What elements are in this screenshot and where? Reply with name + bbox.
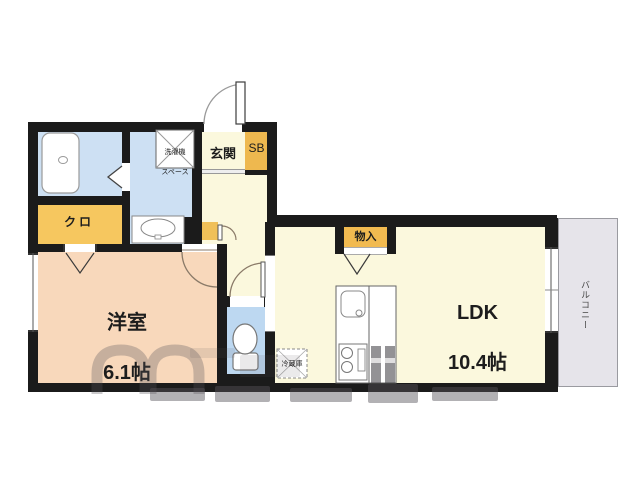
wall-ldk-right-lower <box>545 333 558 392</box>
pipe-space-box <box>202 222 218 240</box>
storage-opening <box>344 247 387 255</box>
front-door-arc <box>204 84 244 124</box>
wall-westroom-top-a <box>28 244 63 252</box>
western-room-label: 洋室 6.1帖 <box>72 286 182 386</box>
wall-block-right-upper <box>267 122 277 222</box>
wall-sb-bottom <box>245 170 267 175</box>
closet-opening <box>63 244 97 252</box>
window-left <box>28 253 38 332</box>
toilet-room-floor <box>222 300 268 380</box>
shoe-box-label: SB <box>245 141 268 155</box>
wall-westroom-top-b <box>97 244 182 252</box>
washer-space-label: 洗濯機 スペース <box>155 138 195 178</box>
storage-stub-left <box>335 223 344 254</box>
closet-label: クロ <box>48 213 110 230</box>
wall-hall-ldk-lower <box>265 332 275 392</box>
washer-space-line2: スペース <box>161 169 188 176</box>
bathroom-floor <box>33 127 127 201</box>
wall-ldk-top <box>267 215 557 227</box>
ldk-label: LDK 10.4帖 <box>420 276 535 376</box>
floorplan: 玄関 SB 洗濯機 スペース クロ 洋室 6.1帖 LDK 10.4帖 物入 冷… <box>0 0 640 480</box>
wall-toilet-stub-left <box>217 296 230 307</box>
entrance-step-line <box>202 169 245 174</box>
wall-ldk-right-upper <box>545 218 558 247</box>
western-room-size: 6.1帖 <box>103 362 151 384</box>
balcony-label: バルコニー <box>579 262 592 348</box>
washer-space-line1: 洗濯機 <box>165 149 186 156</box>
storage-label: 物入 <box>344 228 387 244</box>
window-ldk-right <box>545 247 558 333</box>
hall-ldk-opening <box>265 255 275 332</box>
front-door-leaf <box>236 82 245 124</box>
wall-top-left <box>28 122 204 132</box>
refrigerator-label: 冷蔵庫 <box>277 359 307 369</box>
western-room-name: 洋室 <box>107 312 147 334</box>
bath-fold-opening <box>122 163 130 191</box>
wall-westroom-right <box>217 244 227 392</box>
front-door-opening <box>204 121 242 132</box>
toilet-door-opening <box>230 296 264 307</box>
storage-stub-right <box>387 223 396 254</box>
ldk-size: 10.4帖 <box>448 352 507 374</box>
ldk-name: LDK <box>457 302 498 324</box>
wall-bath-bottom <box>28 196 126 205</box>
westroom-door-opening <box>182 244 217 252</box>
entrance-label: 玄関 <box>200 143 246 162</box>
wall-toilet-bottom <box>217 374 275 383</box>
wall-bath-divider-upper <box>122 132 130 165</box>
wall-corner-chunk <box>184 217 202 244</box>
